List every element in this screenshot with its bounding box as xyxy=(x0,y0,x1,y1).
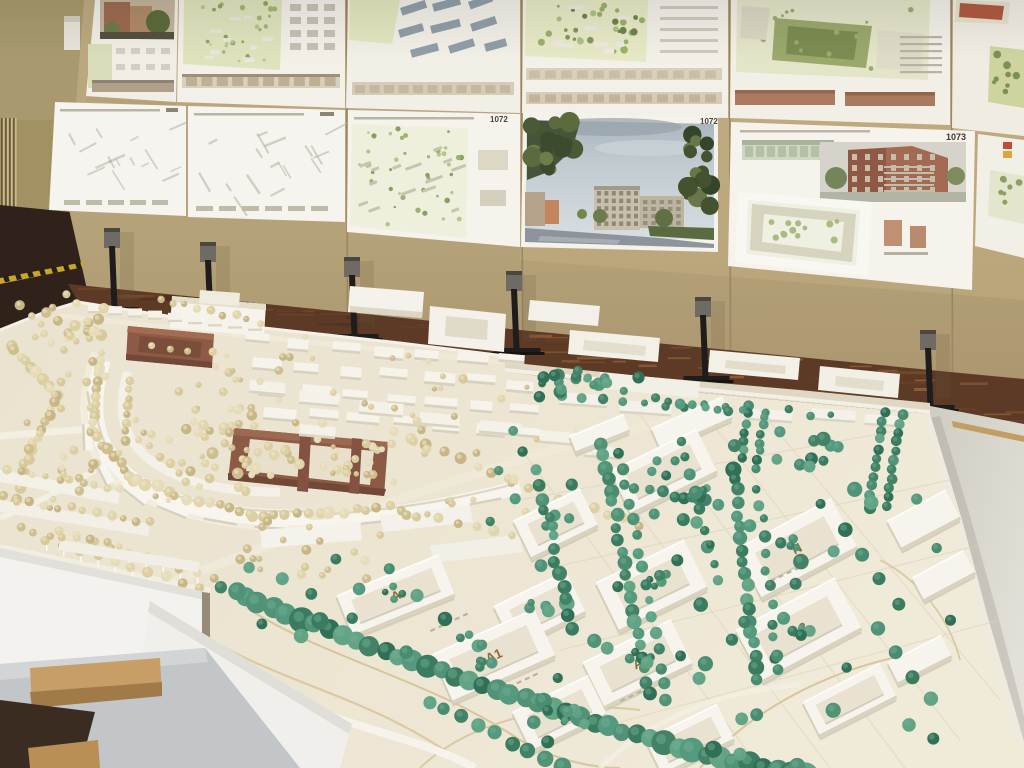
svg-text:1073: 1073 xyxy=(946,132,966,142)
svg-text:1072: 1072 xyxy=(490,115,508,124)
